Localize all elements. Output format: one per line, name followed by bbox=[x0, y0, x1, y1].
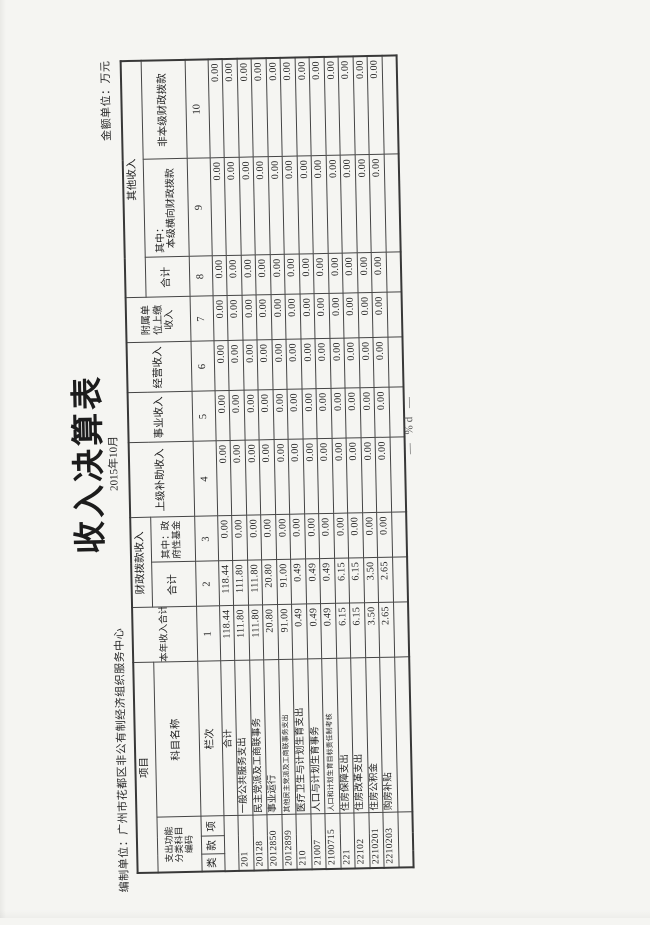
row-value-cell: 0.00 bbox=[371, 253, 386, 293]
header-fiscal-gov-fund: 其中：政府性基金 bbox=[150, 517, 195, 563]
header-business-income: 经营收入 bbox=[127, 342, 192, 393]
row-value-cell: 0.00 bbox=[284, 255, 299, 295]
header-other-total: 合计 bbox=[145, 257, 190, 298]
row-code-cell: 2210203 bbox=[383, 813, 399, 868]
header-code-section: 款 bbox=[201, 836, 224, 854]
row-value-cell: 0.00 bbox=[256, 295, 271, 340]
header-operation-income: 事业收入 bbox=[128, 392, 193, 443]
row-value-cell: 0.00 bbox=[217, 516, 232, 561]
row-value-cell: 0.00 bbox=[300, 339, 316, 389]
row-value-cell: 0.00 bbox=[315, 339, 331, 389]
row-value-cell: 0.00 bbox=[319, 514, 334, 559]
row-value-cell: 0.00 bbox=[274, 440, 290, 515]
row-value-cell bbox=[393, 602, 409, 657]
header-fiscal-grant-group: 财政拨款收入 bbox=[130, 518, 152, 608]
row-value-cell: 0.00 bbox=[258, 390, 274, 440]
row-value-cell: 0.00 bbox=[362, 513, 377, 558]
row-value-cell: 0.00 bbox=[232, 516, 247, 561]
row-value-cell: 0.00 bbox=[361, 438, 377, 513]
row-value-cell: 111.80 bbox=[233, 561, 248, 606]
row-value-cell: 0.00 bbox=[244, 390, 260, 440]
page-number-footer: — %d — bbox=[403, 394, 416, 454]
header-fiscal-total: 合计 bbox=[151, 562, 196, 608]
amount-unit-label: 金额单位：万元 bbox=[97, 60, 115, 141]
row-value-cell: 0.00 bbox=[372, 293, 387, 338]
row-value-cell: 0.00 bbox=[331, 389, 347, 439]
row-value-cell: 0.00 bbox=[228, 341, 244, 391]
row-value-cell bbox=[382, 55, 399, 154]
row-code-cell: 21007 bbox=[310, 814, 326, 869]
row-value-cell: 0.00 bbox=[213, 296, 228, 341]
row-value-cell: 0.00 bbox=[286, 339, 302, 389]
table-header: 项目 本年收入合计 财政拨款收入 上级补助收入 事业收入 经营收入 附属单位上缴… bbox=[121, 59, 225, 873]
row-value-cell: 0.00 bbox=[257, 340, 273, 390]
row-value-cell bbox=[384, 154, 401, 252]
row-value-cell: 118.44 bbox=[219, 606, 235, 661]
header-affiliate-income: 附属单位上缴收入 bbox=[126, 297, 191, 343]
header-other-nonlocal: 非本级财政拨款 bbox=[141, 60, 187, 160]
row-code-cell: 2210201 bbox=[368, 813, 384, 868]
row-value-cell: 0.00 bbox=[242, 295, 257, 340]
col-number-1: 1 bbox=[196, 606, 220, 661]
row-code-cell: 2012850 bbox=[267, 815, 283, 870]
row-value-cell: 111.80 bbox=[248, 605, 264, 660]
header-higher-subsidy: 上级补助收入 bbox=[129, 442, 195, 518]
row-value-cell: 0.00 bbox=[300, 294, 315, 339]
row-value-cell: 20.80 bbox=[263, 605, 279, 660]
row-code-cell: 201 bbox=[238, 816, 254, 871]
row-value-cell: 0.00 bbox=[216, 441, 232, 516]
row-value-cell: 6.15 bbox=[350, 603, 366, 658]
row-value-cell: 0.49 bbox=[291, 559, 306, 604]
row-value-cell: 0.00 bbox=[313, 254, 328, 294]
row-value-cell: 0.00 bbox=[333, 514, 348, 559]
row-value-cell: 0.00 bbox=[290, 514, 305, 559]
header-other-horizontal: 其中： 本级横向财政拨款 bbox=[143, 159, 189, 258]
header-total-income: 本年收入合计 bbox=[132, 607, 197, 663]
row-value-cell: 0.00 bbox=[212, 256, 227, 296]
row-subject-name-cell bbox=[394, 657, 412, 812]
row-value-cell: 0.00 bbox=[214, 341, 230, 391]
col-number-7: 7 bbox=[190, 296, 214, 341]
row-value-cell: 0.00 bbox=[303, 439, 319, 514]
row-value-cell: 0.49 bbox=[321, 604, 337, 659]
row-code-cell bbox=[397, 812, 413, 867]
row-value-cell: 0.00 bbox=[358, 338, 374, 388]
row-value-cell: 0.00 bbox=[342, 253, 357, 293]
col-number-4: 4 bbox=[193, 441, 218, 516]
header-code-class: 类 bbox=[201, 854, 224, 871]
row-value-cell bbox=[386, 252, 401, 292]
row-value-cell: 0.00 bbox=[329, 339, 345, 389]
row-code-cell: 2100715 bbox=[325, 814, 341, 869]
row-value-cell: 2.65 bbox=[379, 603, 395, 658]
row-value-cell: 0.00 bbox=[302, 389, 318, 439]
row-value-cell: 0.00 bbox=[346, 438, 362, 513]
col-number-6: 6 bbox=[191, 341, 215, 391]
row-value-cell: 0.00 bbox=[373, 338, 389, 388]
row-code-cell: 210 bbox=[296, 814, 312, 869]
row-value-cell: 0.00 bbox=[343, 293, 358, 338]
row-value-cell: 0.00 bbox=[358, 293, 373, 338]
row-value-cell: 0.00 bbox=[245, 440, 261, 515]
row-value-cell: 0.00 bbox=[270, 255, 285, 295]
row-value-cell: 0.00 bbox=[261, 515, 276, 560]
header-subject-name: 科目名称 bbox=[153, 662, 200, 818]
row-value-cell: 0.00 bbox=[226, 256, 241, 296]
row-value-cell: 3.50 bbox=[364, 603, 380, 658]
row-value-cell: 0.00 bbox=[227, 296, 242, 341]
row-value-cell bbox=[387, 337, 403, 387]
row-value-cell: 0.00 bbox=[299, 254, 314, 294]
row-value-cell: 0.49 bbox=[320, 559, 335, 604]
row-value-cell: 0.00 bbox=[288, 439, 304, 514]
row-code-cell: 20128 bbox=[252, 815, 268, 870]
row-value-cell: 0.00 bbox=[304, 514, 319, 559]
row-value-cell: 0.00 bbox=[316, 389, 332, 439]
row-code-cell: 2012899 bbox=[281, 815, 297, 870]
row-code-cell: 22102 bbox=[354, 813, 370, 868]
row-value-cell: 0.00 bbox=[243, 340, 259, 390]
other-horizontal-label: 本级横向财政拨款 bbox=[165, 164, 178, 253]
row-value-cell: 0.49 bbox=[305, 559, 320, 604]
row-value-cell: 0.49 bbox=[306, 604, 322, 659]
row-value-cell: 0.00 bbox=[229, 391, 245, 441]
row-value-cell: 6.15 bbox=[334, 559, 349, 604]
row-value-cell: 6.15 bbox=[349, 558, 364, 603]
row-value-cell bbox=[392, 557, 407, 602]
row-value-cell: 0.00 bbox=[271, 295, 286, 340]
row-value-cell: 0.00 bbox=[374, 388, 390, 438]
col-number-9: 9 bbox=[187, 158, 212, 256]
row-value-cell: 20.80 bbox=[262, 560, 277, 605]
header-code-group: 支出功能分类科目编码 bbox=[156, 817, 201, 873]
header-row-index-label: 栏次 bbox=[197, 661, 223, 816]
row-value-cell: 0.00 bbox=[348, 513, 363, 558]
scanned-document-page: { "page": { "title": "收入决算表", "subtitle"… bbox=[0, 0, 650, 918]
row-value-cell: 0.00 bbox=[271, 340, 287, 390]
row-code-cell: 221 bbox=[339, 813, 355, 868]
row-value-cell: 91.00 bbox=[277, 605, 293, 660]
row-value-cell: 0.00 bbox=[377, 513, 392, 558]
income-final-accounts-table: 项目 本年收入合计 财政拨款收入 上级补助收入 事业收入 经营收入 附属单位上缴… bbox=[120, 54, 414, 874]
row-value-cell: 118.44 bbox=[218, 561, 233, 606]
row-value-cell: 111.80 bbox=[234, 606, 250, 661]
row-value-cell: 91.00 bbox=[276, 560, 291, 605]
row-value-cell: 0.00 bbox=[287, 389, 303, 439]
row-value-cell: 0.00 bbox=[241, 255, 256, 295]
row-value-cell: 0.00 bbox=[259, 440, 275, 515]
row-value-cell: 0.00 bbox=[344, 338, 360, 388]
row-value-cell: 0.00 bbox=[328, 254, 343, 294]
row-value-cell: 0.00 bbox=[329, 294, 344, 339]
row-code-cell bbox=[223, 816, 239, 871]
row-value-cell: 0.00 bbox=[360, 388, 376, 438]
rotated-landscape-page: 收入决算表 2015年10月 编制单位：广州市花都区非公有制经济组织服务中心 金… bbox=[0, 0, 650, 925]
table-body: 合计118.44118.440.000.000.000.000.000.000.… bbox=[208, 55, 413, 871]
col-number-2: 2 bbox=[195, 561, 219, 606]
header-code-item: 项 bbox=[200, 816, 223, 836]
row-value-cell: 0.49 bbox=[292, 604, 308, 659]
row-value-cell: 0.00 bbox=[275, 515, 290, 560]
row-value-cell: 0.00 bbox=[332, 439, 348, 514]
row-value-cell: 6.15 bbox=[335, 604, 351, 659]
col-number-8: 8 bbox=[189, 256, 213, 296]
row-value-cell: 0.00 bbox=[317, 439, 333, 514]
row-value-cell: 0.00 bbox=[345, 388, 361, 438]
row-value-cell: 0.00 bbox=[285, 294, 300, 339]
row-value-cell: 0.00 bbox=[273, 390, 289, 440]
col-number-3: 3 bbox=[194, 516, 218, 561]
row-value-cell: 0.00 bbox=[375, 438, 391, 513]
row-value-cell: 3.50 bbox=[363, 558, 378, 603]
row-value-cell: 0.00 bbox=[215, 391, 231, 441]
row-value-cell bbox=[387, 292, 402, 337]
row-value-cell: 0.00 bbox=[357, 253, 372, 293]
row-value-cell: 0.00 bbox=[246, 515, 261, 560]
row-value-cell: 0.00 bbox=[314, 294, 329, 339]
col-number-10: 10 bbox=[185, 59, 210, 158]
row-value-cell: 0.00 bbox=[230, 441, 246, 516]
row-value-cell: 111.80 bbox=[247, 560, 262, 605]
row-value-cell: 2.65 bbox=[378, 558, 393, 603]
col-number-5: 5 bbox=[192, 391, 216, 441]
row-value-cell bbox=[391, 512, 406, 557]
row-value-cell: 0.00 bbox=[255, 255, 270, 295]
